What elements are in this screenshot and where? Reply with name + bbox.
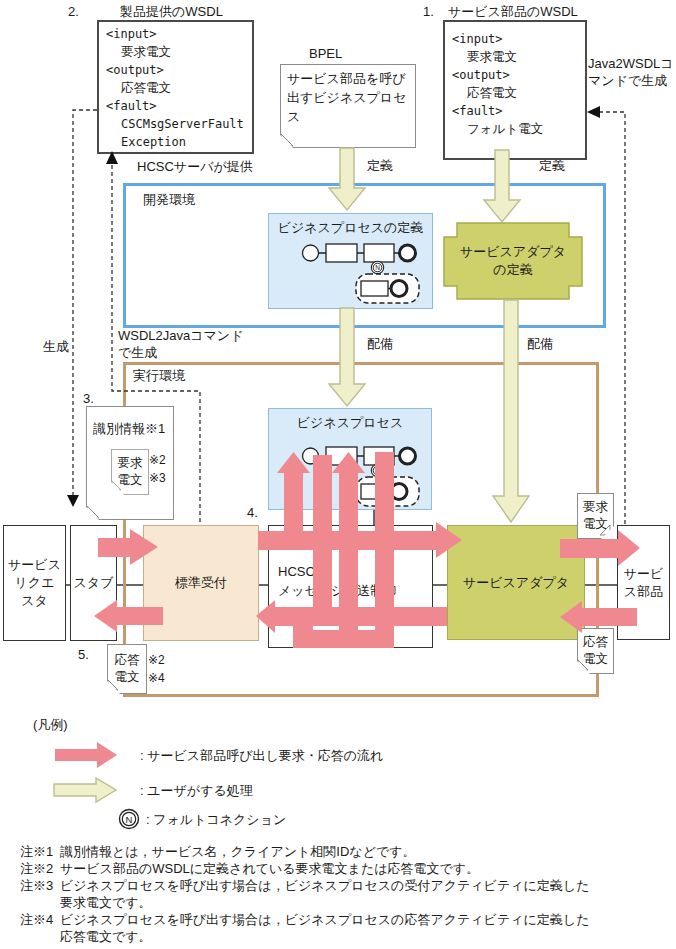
footnote-tag: 注※2 [20, 860, 60, 877]
footnote-tag: 注※3 [20, 877, 60, 911]
fault-end-icon [391, 484, 407, 500]
svg-text:N: N [375, 467, 380, 474]
legend-user-label: : ユーザがする処理 [140, 783, 253, 799]
wsdl-response-msg: 応答電文 [99, 79, 252, 97]
bpel-note: サービス部品を呼び 出すビジネスプロセ ス [280, 64, 416, 148]
legend-flow-arrow-icon [55, 742, 119, 769]
define-label-left: 定義 [367, 158, 393, 174]
footnote-row: 注※2 サービス部品のWSDLに定義されている要求電文または応答電文です。 [20, 860, 479, 877]
label-number-1: 1. [423, 4, 434, 20]
hcsc-messaging-box: HCSC メッセージ配送制御 [268, 525, 433, 648]
wsdl-output-tag: <output> [99, 61, 252, 79]
footnote-text: サービス部品のWSDLに定義されている要求電文または応答電文です。 [60, 860, 479, 877]
activity-icon [326, 244, 357, 262]
wsdl-product-title: 製品提供のWSDL [120, 4, 223, 20]
fault-connection-icon: N [371, 261, 383, 273]
footnote-text: ビジネスプロセスを呼び出す場合は，ビジネスプロセスの受付アクティビティに定義した… [60, 877, 589, 911]
fault-activity-icon [361, 281, 388, 296]
response-msg-note-left: 応答 電文 [107, 644, 147, 694]
legend-fault-label: : フォルトコネクション [146, 812, 286, 828]
wsdl-fault-tag: <fault> [99, 97, 252, 115]
wsdl-input-tag: <input> [445, 30, 585, 48]
footnote-row: 注※1 識別情報とは，サービス名，クライアント相関IDなどです。 [20, 843, 416, 860]
bp-runtime-box: ビジネスプロセス N [268, 408, 432, 510]
wsdl-fault-tag: <fault> [445, 102, 585, 120]
footnote-text: 識別情報とは，サービス名，クライアント相関IDなどです。 [60, 843, 416, 860]
hcsc-messaging-label: HCSC メッセージ配送制御 [269, 526, 396, 600]
define-label-right: 定義 [539, 158, 565, 174]
service-requester-box: サービス リクエ スタ [3, 525, 66, 641]
ref-mark-2: ※2 [149, 452, 166, 468]
diagram-canvas: 2. 製品提供のWSDL 1. サービス部品のWSDL <input> 要求電文… [0, 0, 676, 949]
product-wsdl-box: <input> 要求電文 <output> 応答電文 <fault> CSCMs… [97, 20, 254, 154]
runtime-environment-label: 実行環境 [133, 368, 185, 384]
activity-icon [326, 447, 357, 465]
fault-connection-icon: N [371, 464, 383, 476]
fault-end-icon [391, 281, 407, 297]
bpel-label: BPEL [309, 46, 342, 62]
svg-text:N: N [375, 264, 380, 271]
footnote-tag: 注※4 [20, 911, 60, 945]
service-wsdl-box: <input> 要求電文 <output> 応答電文 <fault> フォルト電… [443, 20, 587, 160]
bp-runtime-title: ビジネスプロセス [269, 414, 431, 432]
activity-icon [364, 244, 394, 262]
start-activity-icon [303, 448, 319, 464]
wsdl-response-msg: 応答電文 [445, 84, 585, 102]
wsdl2java-label: WSDL2Javaコマンド で生成 [118, 327, 243, 361]
wsdl-request-msg: 要求電文 [445, 48, 585, 66]
java2wsdl-label: Java2WSDLコ マンドで生成 [588, 55, 676, 89]
wsdl-fault-msg: フォルト電文 [445, 120, 585, 138]
legend-title: (凡例) [33, 717, 68, 733]
wsdl-service-title: サービス部品のWSDL [448, 4, 578, 20]
standard-reception-box: 標準受付 [143, 525, 259, 641]
footnote-tag: 注※1 [20, 843, 60, 860]
label-number-5: 5. [78, 647, 89, 663]
ref-mark-2: ※2 [148, 652, 165, 668]
generate-label: 生成 [43, 339, 69, 355]
label-number-4: 4. [247, 505, 258, 521]
service-component-box: サービ ス部品 [617, 525, 670, 640]
bp-flow-diagram: N [277, 443, 427, 507]
footnote-row: 注※4 ビジネスプロセスを呼び出す場合は，ビジネスプロセスの応答アクティビティに… [20, 911, 589, 945]
wsdl-output-tag: <output> [445, 66, 585, 84]
hcsc-provided-label: HCSCサーバが提供 [137, 159, 253, 175]
legend-fault-connection-icon: N [117, 807, 141, 831]
wsdl-input-tag: <input> [99, 25, 252, 43]
wsdl-fault-class2: Exception [99, 133, 252, 151]
bp-definition-box: ビジネスプロセスの定義 N [268, 213, 433, 309]
bp-definition-title: ビジネスプロセスの定義 [269, 219, 432, 237]
footnote-text: ビジネスプロセスを呼び出す場合は，ビジネスプロセスの応答アクティビティに定義した… [60, 911, 589, 945]
fault-activity-icon [361, 484, 388, 499]
legend-user-arrow-icon [53, 777, 119, 804]
ref-mark-4: ※4 [148, 670, 165, 686]
legend-flow-label: : サービス部品呼び出し要求・応答の流れ [140, 748, 383, 764]
activity-icon [364, 447, 394, 465]
bpel-note-text: サービス部品を呼び 出すビジネスプロセ ス [281, 65, 415, 130]
ref-mark-3: ※3 [149, 470, 166, 486]
adapter-definition-title: サービスアダプタ の定義 [443, 222, 583, 300]
end-activity-icon [400, 245, 416, 261]
label-number-2: 2. [68, 4, 79, 20]
stub-box: スタブ [70, 525, 117, 641]
deploy-label-right: 配備 [527, 336, 553, 352]
end-activity-icon [400, 448, 416, 464]
dev-environment-label: 開発環境 [143, 192, 195, 208]
deploy-label-left: 配備 [367, 336, 393, 352]
fault-glyph: N [126, 814, 133, 825]
identification-note-text: 識別情報※1 [87, 407, 173, 437]
wsdl-request-msg: 要求電文 [99, 43, 252, 61]
wsdl-fault-class: CSCMsgServerFault [99, 115, 252, 133]
label-number-3: 3. [83, 391, 94, 407]
bp-flow-diagram: N [277, 240, 427, 304]
service-adapter-box: サービスアダプタ [447, 525, 585, 640]
footnote-row: 注※3 ビジネスプロセスを呼び出す場合は，ビジネスプロセスの受付アクティビティに… [20, 877, 589, 911]
start-activity-icon [303, 245, 319, 261]
